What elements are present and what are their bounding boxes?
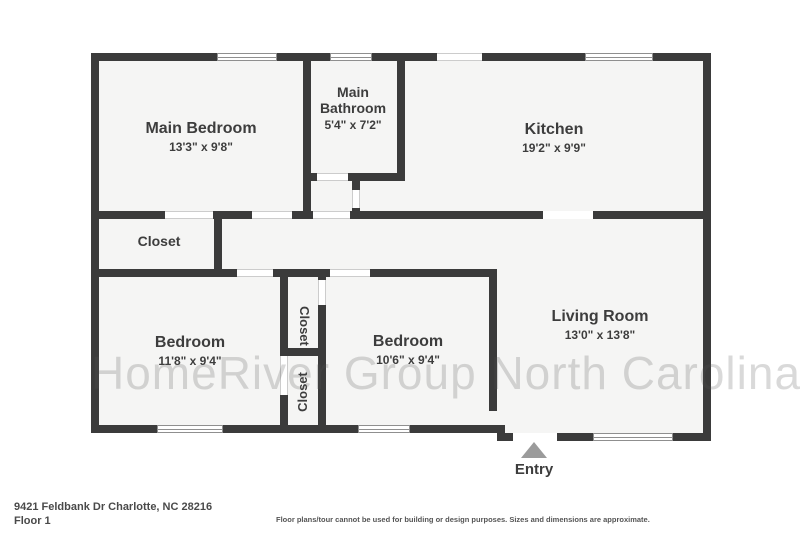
footer-floor-label: Floor 1 bbox=[14, 515, 51, 527]
door-opening bbox=[252, 211, 292, 219]
door-opening bbox=[318, 280, 326, 305]
window bbox=[157, 425, 223, 433]
floor-plan-page: Main Bedroom 13'3" x 9'8" Main Bathroom … bbox=[0, 0, 800, 533]
room-name: Main Bathroom bbox=[311, 84, 395, 116]
window bbox=[330, 53, 372, 61]
wall bbox=[214, 211, 222, 277]
room-dims: 19'2" x 9'9" bbox=[522, 141, 586, 155]
room-name: Closet bbox=[296, 372, 311, 412]
wall bbox=[91, 269, 497, 277]
window bbox=[585, 53, 653, 61]
room-dims: 5'4" x 7'2" bbox=[311, 118, 395, 132]
door-opening bbox=[352, 190, 360, 208]
floor-plan: Main Bedroom 13'3" x 9'8" Main Bathroom … bbox=[0, 0, 800, 533]
room-label-living-room: Living Room 13'0" x 13'8" bbox=[552, 308, 649, 342]
door-opening bbox=[313, 211, 350, 219]
window bbox=[593, 433, 673, 441]
room-dims: 13'0" x 13'8" bbox=[552, 328, 649, 342]
room-label-closet-bottom: Closet bbox=[296, 372, 311, 412]
wall bbox=[91, 425, 505, 433]
wall-opening bbox=[513, 433, 557, 441]
room-label-main-bedroom: Main Bedroom 13'3" x 9'8" bbox=[145, 120, 256, 154]
room-dims: 13'3" x 9'8" bbox=[145, 140, 256, 154]
room-label-closet-top: Closet bbox=[296, 306, 311, 346]
entry-label: Entry bbox=[515, 461, 553, 478]
room-name: Bedroom bbox=[373, 333, 443, 351]
entry-arrow-icon bbox=[521, 442, 547, 458]
room-label-kitchen: Kitchen 19'2" x 9'9" bbox=[522, 121, 586, 155]
room-label-bedroom-left: Bedroom 11'8" x 9'4" bbox=[155, 334, 225, 368]
wall bbox=[303, 53, 311, 217]
wall bbox=[280, 277, 288, 425]
room-dims: 10'6" x 9'4" bbox=[373, 353, 443, 367]
room-label-main-bathroom: Main Bathroom 5'4" x 7'2" bbox=[311, 84, 395, 132]
room-name: Kitchen bbox=[522, 121, 586, 139]
wall bbox=[703, 53, 711, 441]
wall bbox=[397, 53, 405, 181]
room-name: Closet bbox=[296, 306, 311, 346]
room-name: Closet bbox=[138, 233, 181, 249]
window bbox=[217, 53, 277, 61]
window bbox=[358, 425, 410, 433]
door-opening bbox=[330, 269, 370, 277]
wall bbox=[91, 53, 99, 433]
footer-disclaimer: Floor plans/tour cannot be used for buil… bbox=[276, 515, 650, 524]
door-opening bbox=[317, 173, 348, 181]
wall bbox=[489, 269, 497, 411]
door-opening bbox=[280, 356, 288, 395]
room-label-bedroom-mid: Bedroom 10'6" x 9'4" bbox=[373, 333, 443, 367]
room-label-closet-hall: Closet bbox=[138, 233, 181, 249]
door-opening bbox=[437, 53, 482, 61]
door-opening bbox=[165, 211, 213, 219]
room-name: Bedroom bbox=[155, 334, 225, 352]
wall-opening bbox=[543, 211, 593, 219]
room-dims: 11'8" x 9'4" bbox=[155, 354, 225, 368]
door-opening bbox=[237, 269, 273, 277]
footer-address: 9421 Feldbank Dr Charlotte, NC 28216 bbox=[14, 501, 212, 513]
room-name: Main Bedroom bbox=[145, 120, 256, 138]
room-name: Living Room bbox=[552, 308, 649, 326]
